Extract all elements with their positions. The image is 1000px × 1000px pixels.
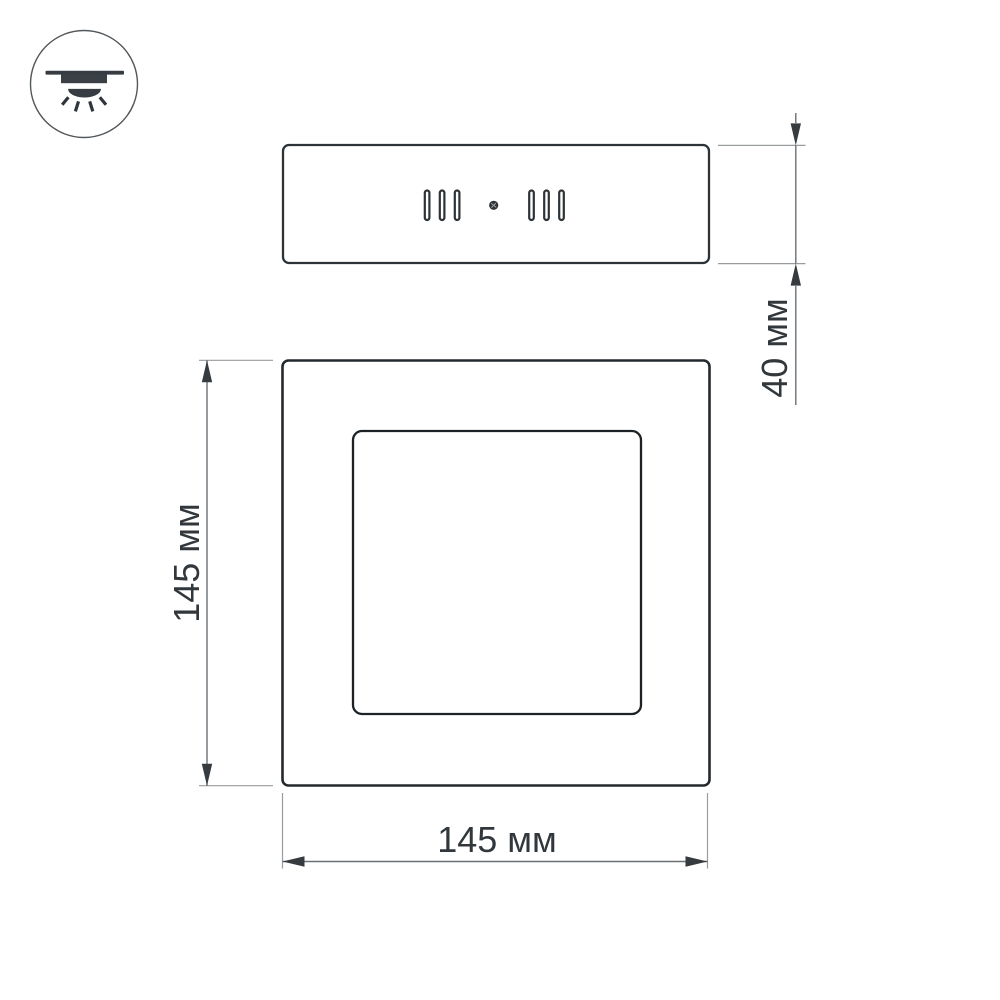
svg-text:40 мм: 40 мм — [754, 298, 795, 398]
svg-text:145 мм: 145 мм — [166, 503, 207, 623]
svg-text:145 мм: 145 мм — [437, 819, 557, 860]
